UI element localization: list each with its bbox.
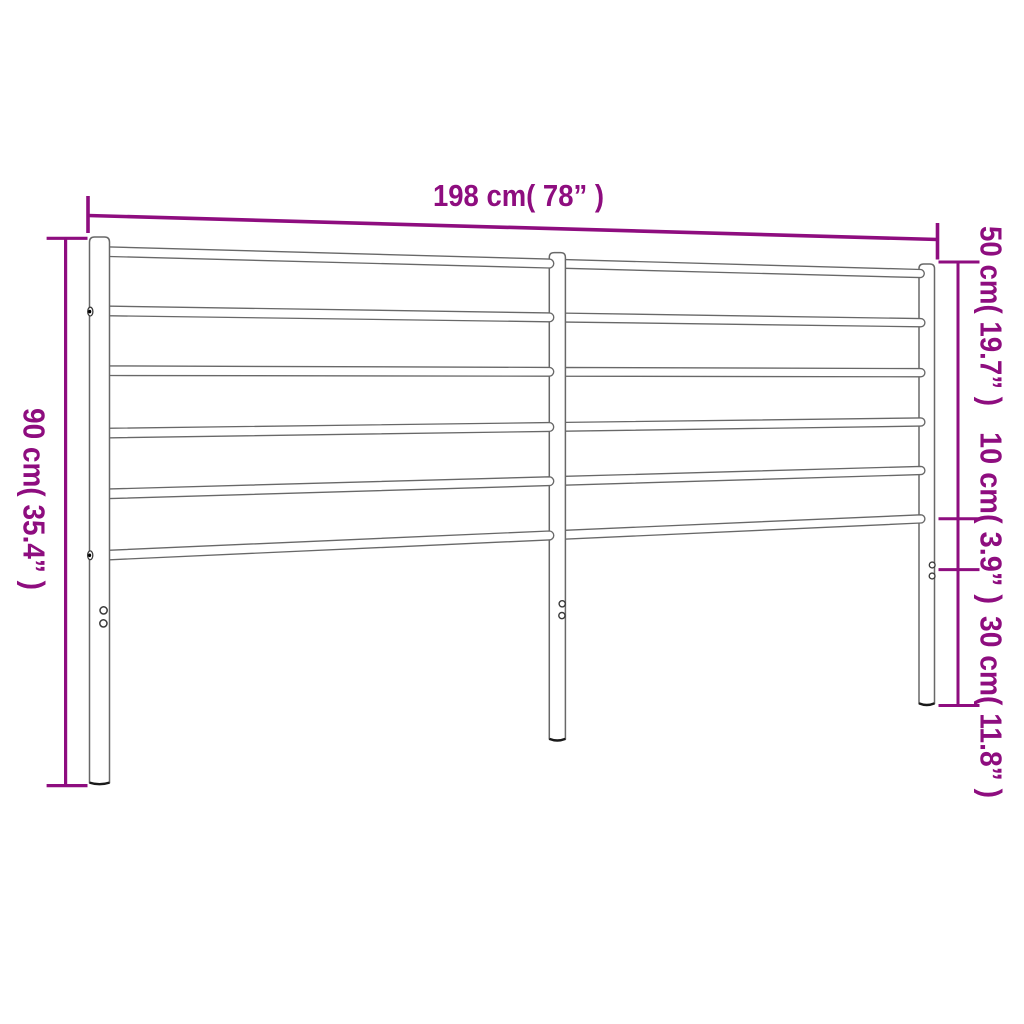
svg-text:10 cm( 3.9” ): 10 cm( 3.9” ): [973, 432, 1008, 604]
svg-text:90 cm( 35.4” ): 90 cm( 35.4” ): [16, 408, 51, 590]
svg-text:198 cm( 78” ): 198 cm( 78” ): [433, 178, 604, 213]
svg-text:50 cm( 19.7” ): 50 cm( 19.7” ): [973, 226, 1008, 406]
svg-text:30 cm( 11.8” ): 30 cm( 11.8” ): [973, 616, 1008, 798]
